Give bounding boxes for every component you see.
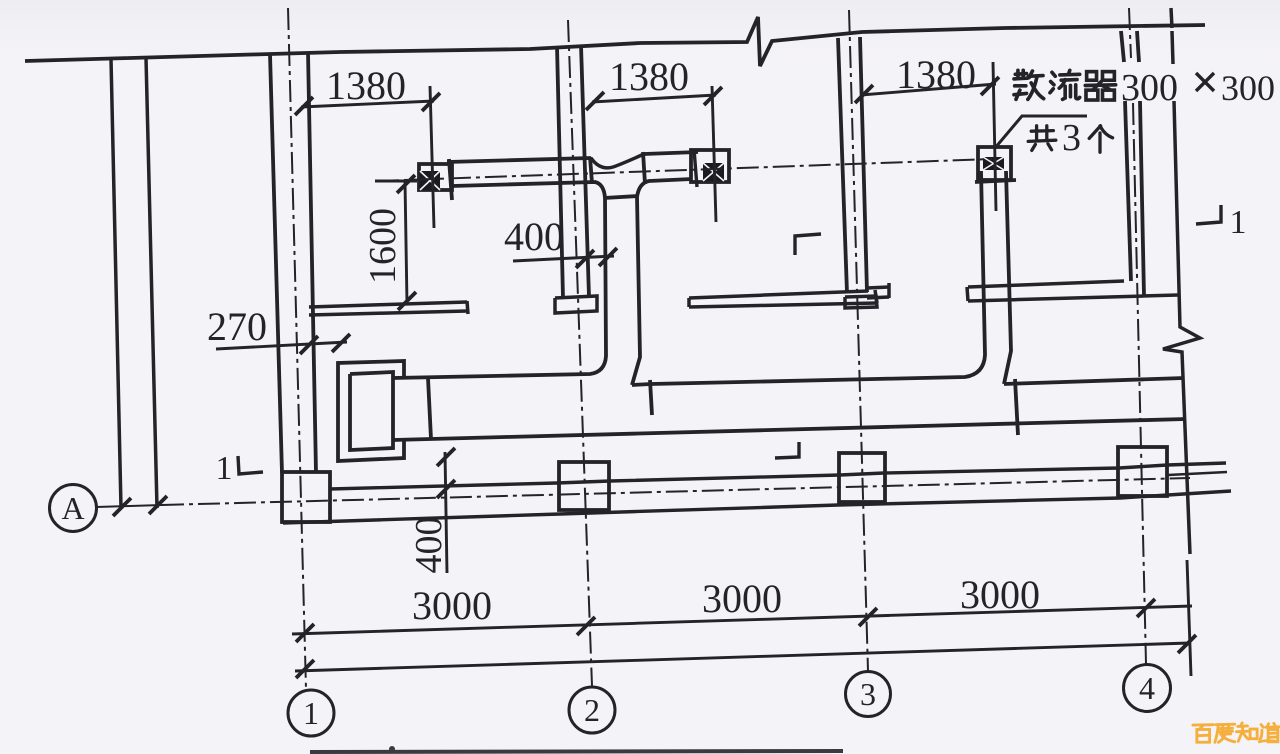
svg-text:1: 1	[303, 695, 319, 731]
svg-text:4: 4	[1139, 670, 1155, 706]
svg-text:400: 400	[504, 214, 564, 259]
svg-text:1600: 1600	[362, 208, 404, 284]
svg-text:2: 2	[584, 692, 600, 728]
svg-text:3: 3	[1062, 117, 1081, 159]
svg-text:270: 270	[207, 304, 267, 349]
svg-text:A: A	[61, 490, 84, 526]
svg-text:3000: 3000	[412, 583, 492, 628]
svg-text:1380: 1380	[609, 54, 689, 99]
svg-text:300: 300	[1221, 68, 1275, 108]
svg-text:1: 1	[1230, 204, 1247, 241]
svg-text:3000: 3000	[702, 576, 782, 621]
svg-text:1380: 1380	[326, 63, 406, 108]
svg-text:1380: 1380	[896, 52, 976, 97]
svg-text:3: 3	[860, 676, 876, 712]
svg-text:300: 300	[1121, 67, 1178, 109]
svg-text:1: 1	[216, 450, 233, 487]
svg-text:400: 400	[408, 517, 450, 574]
svg-text:3000: 3000	[960, 572, 1040, 617]
